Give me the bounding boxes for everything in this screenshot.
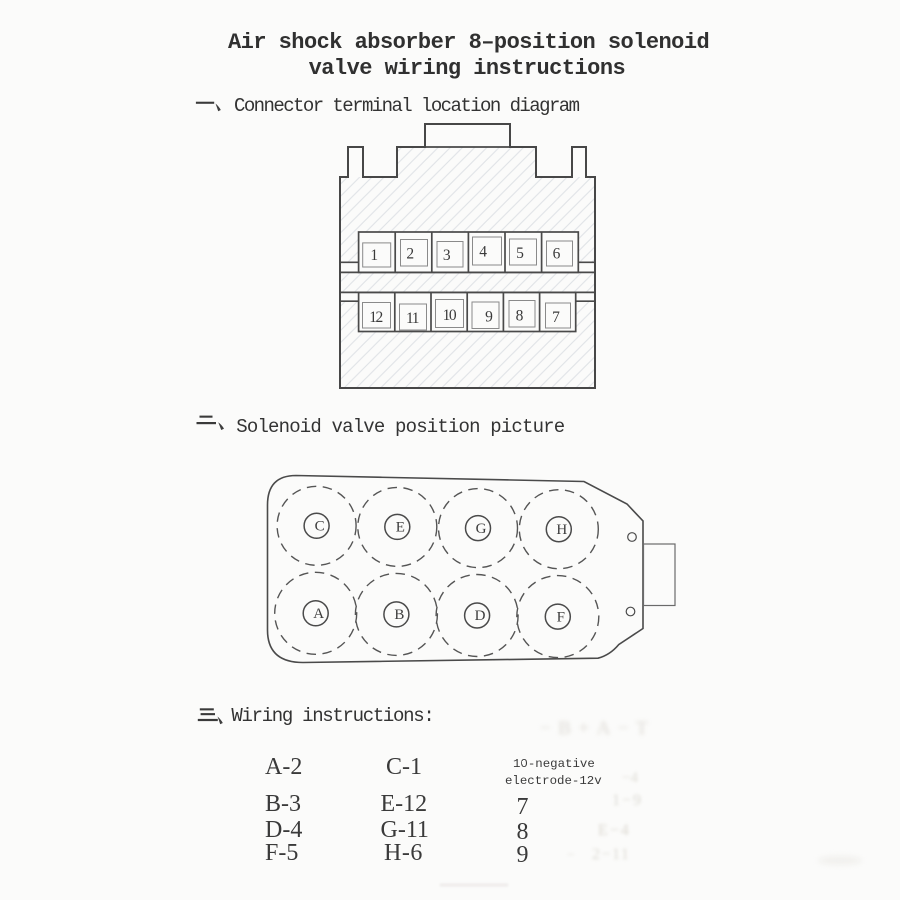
svg-text:7: 7 [552,309,560,326]
svg-text:11: 11 [406,310,419,327]
svg-text:12: 12 [369,309,382,326]
svg-text:5: 5 [516,245,524,262]
svg-text:C: C [315,519,325,535]
svg-text:6: 6 [553,246,561,263]
svg-text:F: F [557,609,565,625]
svg-text:A: A [313,606,324,622]
svg-text:9: 9 [485,309,493,326]
svg-text:D: D [475,608,486,624]
svg-text:2: 2 [406,246,414,263]
svg-text:3: 3 [443,247,451,264]
svg-text:10: 10 [443,307,457,324]
svg-text:1: 1 [370,247,378,264]
svg-text:E: E [396,520,405,536]
svg-text:4: 4 [479,244,487,261]
svg-text:G: G [476,521,487,537]
svg-text:B: B [394,607,404,623]
svg-text:H: H [556,522,567,538]
svg-text:8: 8 [516,308,524,325]
